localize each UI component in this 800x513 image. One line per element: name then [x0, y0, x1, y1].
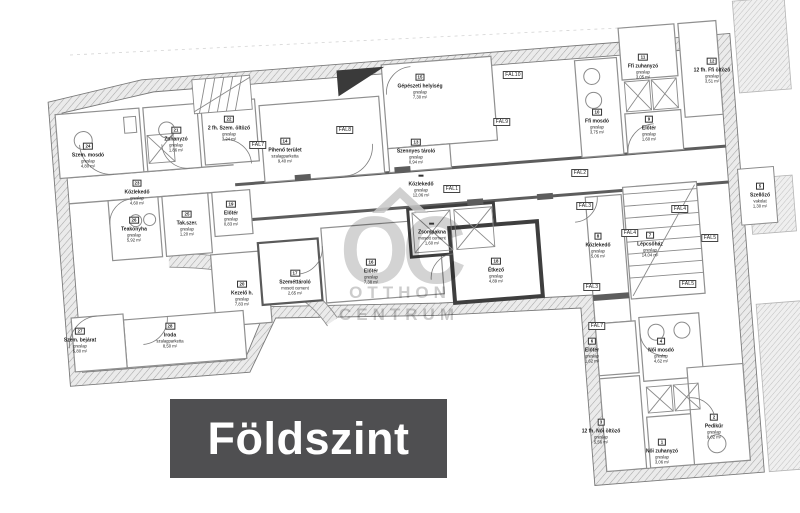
room-area: 7,38 m² — [364, 280, 378, 285]
room-area: 8,50 m² — [156, 344, 183, 349]
floor-name-text: Földszint — [208, 413, 410, 465]
room-area: 3,24 m² — [208, 137, 250, 142]
room-number: 6 — [588, 338, 595, 345]
room-area: 4,60 m² — [124, 201, 149, 206]
wall-tag: FAL10 — [503, 71, 523, 79]
watermark-line1: OTTHON — [349, 283, 451, 303]
wall-tag: FAL7 — [249, 141, 266, 149]
room-number: 9 — [645, 116, 652, 123]
room-area: 4,62 m² — [648, 359, 674, 364]
room-label: 1Női zuhanyzógreslap3,06 m² — [646, 431, 678, 466]
room-label: 1212 fh. Ffi öltözőgreslap3,51 m² — [694, 50, 731, 85]
room-label: 10Ffi mosdógreslap3,75 m² — [585, 101, 609, 136]
room-area: 7,83 m² — [231, 302, 253, 307]
wall-tag: FAL5 — [701, 234, 718, 242]
room-label: 222 fh. Szem. öltözőgreslap3,24 m² — [208, 108, 250, 143]
room-label: 2Pedikűrgreslap9,02 m² — [705, 406, 723, 441]
room-area: 3,51 m² — [694, 79, 731, 84]
room-label: Közlekedőgreslap12,06 m² — [408, 164, 433, 199]
wall-tag: FAL4 — [621, 229, 638, 237]
room-label: 21Zuhanyzógreslap1,86 m² — [164, 119, 187, 154]
room-label: 8Közlekedőgreslap5,06 m² — [585, 225, 610, 260]
room-area: 5,06 m² — [585, 254, 610, 259]
room-area: 14,04 m² — [637, 253, 663, 258]
room-label: 5Szellőzővakolat1,30 m² — [750, 175, 770, 210]
room-label: 312 fh. Női öltözőgreslap5,56 m² — [582, 411, 621, 446]
room-number: 14 — [280, 138, 290, 145]
room-area: 12,06 m² — [408, 193, 433, 198]
room-number: 23 — [132, 180, 142, 187]
room-area: 4,80 m² — [72, 164, 104, 169]
room-number: 15 — [415, 74, 425, 81]
room-number — [418, 175, 423, 177]
room-label: 27Szem. bejáratgreslap5,80 m² — [64, 320, 96, 355]
room-area: 1,86 m² — [164, 148, 187, 153]
room-area: 3,75 m² — [585, 130, 609, 135]
room-label: 7Lépcsőházgreslap14,04 m² — [637, 224, 663, 259]
room-number: 16 — [366, 259, 376, 266]
room-area: 3,06 m² — [646, 460, 678, 465]
wall-tag: FAL3 — [576, 202, 593, 210]
room-area: 1,62 m² — [585, 359, 599, 364]
room-number: 4 — [657, 338, 664, 345]
room-label: 15Gépészeti helyiséggreslap7,30 m² — [397, 66, 442, 101]
room-number: 20 — [237, 281, 247, 288]
room-area: 5,80 m² — [64, 349, 96, 354]
room-area: 1,20 m² — [177, 232, 198, 237]
wall-tag: FAL5 — [679, 280, 696, 288]
room-label: 24Szem. mosdógreslap4,80 m² — [72, 135, 104, 170]
room-area: 3,05 m² — [628, 75, 658, 80]
wall-tag: FAL7 — [588, 322, 605, 330]
room-area: 4,89 m² — [488, 279, 504, 284]
room-number: 11 — [638, 54, 648, 61]
room-number: 28 — [165, 323, 175, 330]
room-number — [429, 223, 434, 225]
room-number: 19 — [226, 201, 236, 208]
room-area: 9,02 m² — [705, 435, 723, 440]
wall-tag: FAL2 — [571, 169, 588, 177]
room-label: 26Teakonyhagreslap5,92 m² — [121, 209, 147, 244]
room-number: 17 — [290, 270, 300, 277]
wall-tag: FAL4 — [671, 205, 688, 213]
room-area: 0,83 m² — [224, 222, 238, 227]
wall-tag: FAL8 — [336, 126, 353, 134]
room-label: 25Tak.szer.greslap1,20 m² — [177, 203, 198, 238]
room-label: 18Étkezőgreslap4,89 m² — [488, 250, 504, 285]
wall-tag: FAL9 — [493, 118, 510, 126]
room-label: 4Női mosdógreslap4,62 m² — [648, 330, 674, 365]
room-label: 16Előtérgreslap7,38 m² — [364, 251, 378, 286]
room-number: 12 — [707, 58, 717, 65]
watermark-line2: CENTRUM — [339, 305, 459, 325]
room-number: 22 — [224, 116, 234, 123]
room-number: 7 — [646, 232, 653, 239]
room-number: 5 — [756, 183, 763, 190]
room-label: 11Ffi zuhanyzógreslap3,05 m² — [628, 46, 658, 81]
room-area: 1,60 m² — [418, 241, 446, 246]
neighbor-hatch-top — [732, 0, 791, 93]
room-number: 1 — [658, 439, 665, 446]
room-area: 1,30 m² — [750, 204, 770, 209]
room-label: 28Irodaszalagparketta8,50 m² — [156, 315, 183, 350]
room-area: 9,40 m² — [268, 159, 301, 164]
room-label: 13Szennyes tárológreslap0,94 m² — [397, 131, 435, 166]
room-number: 13 — [411, 139, 421, 146]
floorplan-page: OC OTTHON CENTRUM 24Szem. mosdógreslap4,… — [0, 0, 800, 513]
room-number: 2 — [710, 414, 717, 421]
wall-tag: FAL1 — [443, 185, 460, 193]
room-number: 24 — [83, 143, 93, 150]
room-label: 14Pihenő területszalagparketta9,40 m² — [268, 130, 301, 165]
wall-tag: FAL3 — [583, 283, 600, 291]
room-number: 21 — [171, 127, 181, 134]
room-number: 8 — [594, 233, 601, 240]
room-area: 5,56 m² — [582, 440, 621, 445]
room-area: 7,30 m² — [397, 95, 442, 100]
room-area: 2,65 m² — [279, 291, 310, 296]
room-label: 23Közlekedőgreslap4,60 m² — [124, 172, 149, 207]
room-number: 26 — [129, 217, 139, 224]
room-number: 25 — [182, 211, 192, 218]
room-label: 19Előtérgreslap0,83 m² — [224, 193, 238, 228]
room-area: 1,60 m² — [642, 137, 656, 142]
room-label: Zsompaknamosott cement1,60 m² — [418, 212, 446, 247]
room-label: 9Előtérgreslap1,60 m² — [642, 108, 656, 143]
room-number: 18 — [491, 258, 501, 265]
room-label: 17Szeméttárolómosott cement2,65 m² — [279, 262, 310, 297]
room-area: 5,92 m² — [121, 238, 147, 243]
room-label: 20Kezelő h.greslap7,83 m² — [231, 273, 253, 308]
room-number: 3 — [597, 419, 604, 426]
room-number: 10 — [592, 109, 602, 116]
room-number: 27 — [75, 328, 85, 335]
room-label: 6Előtérgreslap1,62 m² — [585, 330, 599, 365]
floor-name-banner: Földszint — [170, 399, 447, 478]
